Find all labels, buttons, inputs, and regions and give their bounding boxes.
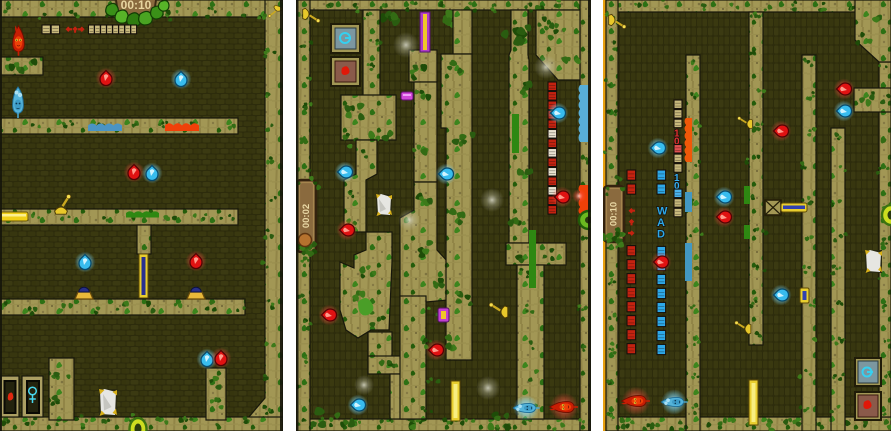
svg-text:W: W [657,205,668,217]
svg-text:00:02: 00:02 [301,204,312,228]
svg-text:00:10: 00:10 [609,202,620,226]
svg-text:D: D [657,228,665,240]
svg-text:A: A [657,217,665,229]
